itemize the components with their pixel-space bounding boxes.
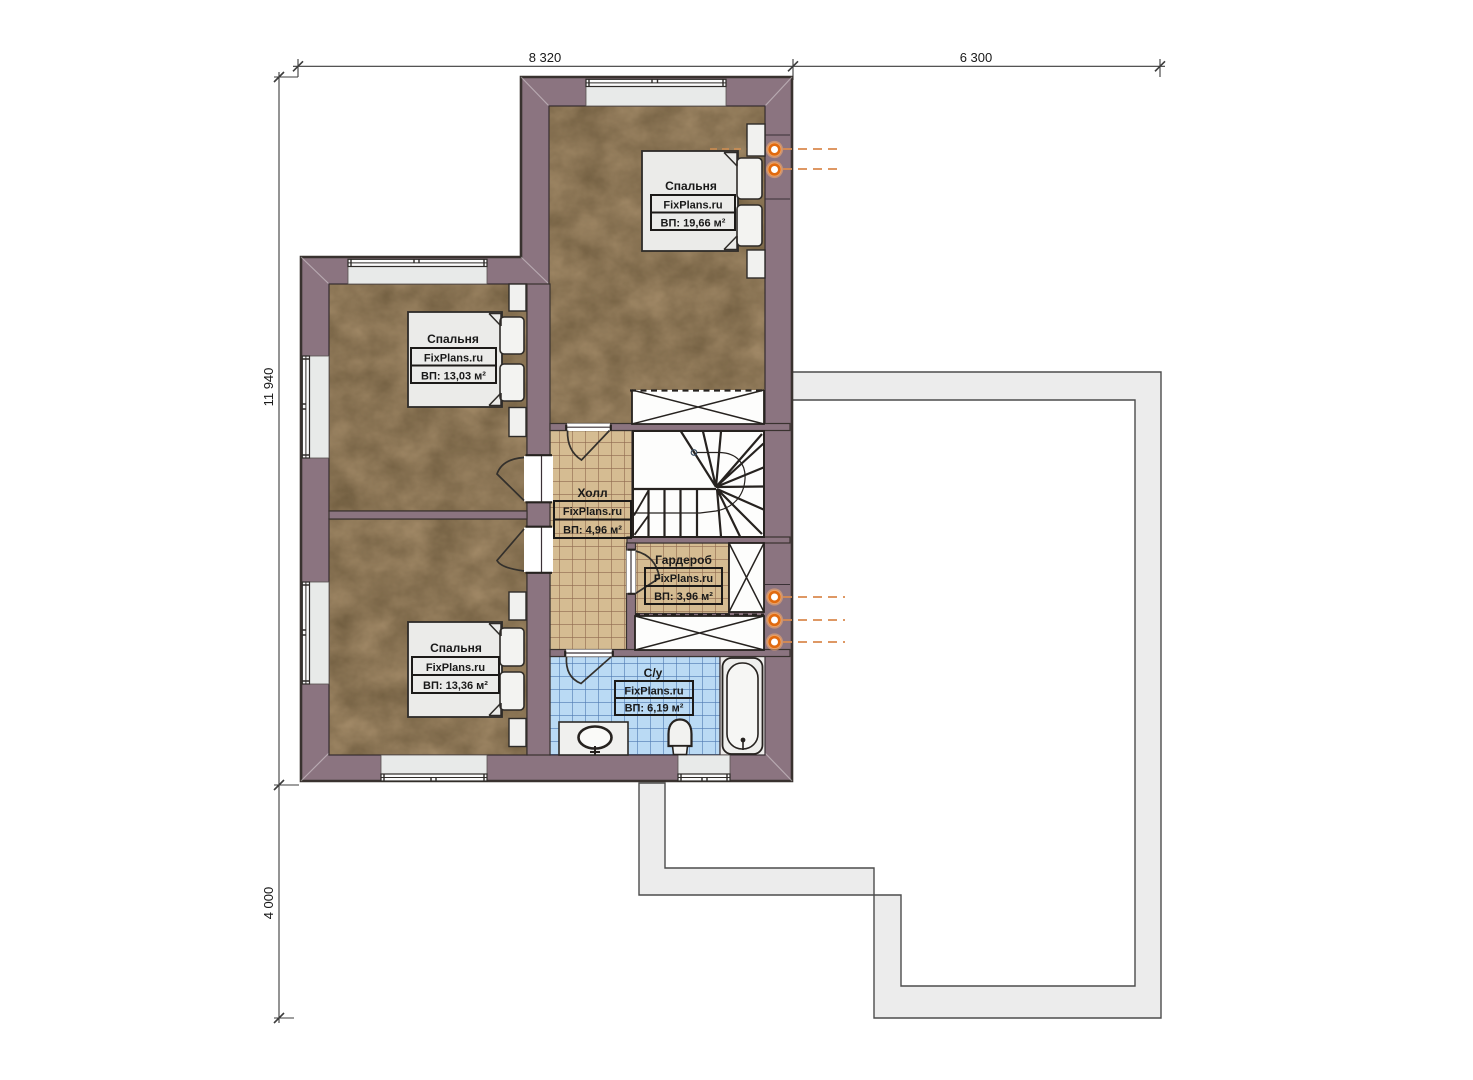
svg-text:Спальня: Спальня — [665, 179, 717, 193]
svg-text:С/у: С/у — [644, 666, 663, 680]
svg-text:Гардероб: Гардероб — [655, 553, 712, 567]
svg-text:FixPlans.ru: FixPlans.ru — [563, 506, 622, 518]
svg-text:FixPlans.ru: FixPlans.ru — [663, 200, 722, 212]
svg-text:6 300: 6 300 — [960, 50, 993, 65]
svg-text:Спальня: Спальня — [427, 332, 479, 346]
svg-text:Спальня: Спальня — [430, 641, 482, 655]
svg-text:FixPlans.ru: FixPlans.ru — [624, 686, 683, 698]
svg-text:11 940: 11 940 — [261, 368, 276, 407]
svg-text:FixPlans.ru: FixPlans.ru — [426, 662, 485, 674]
svg-text:ВП: 19,66 м²: ВП: 19,66 м² — [661, 218, 726, 230]
svg-text:4 000: 4 000 — [261, 887, 276, 920]
svg-text:ВП: 4,96 м²: ВП: 4,96 м² — [563, 525, 622, 537]
svg-text:Холл: Холл — [577, 486, 607, 500]
svg-text:FixPlans.ru: FixPlans.ru — [424, 353, 483, 365]
svg-text:ВП: 13,03 м²: ВП: 13,03 м² — [421, 371, 486, 383]
svg-text:ВП: 3,96 м²: ВП: 3,96 м² — [654, 591, 713, 603]
svg-text:FixPlans.ru: FixPlans.ru — [654, 573, 713, 585]
svg-text:ВП: 13,36 м²: ВП: 13,36 м² — [423, 680, 488, 692]
svg-text:ВП: 6,19 м²: ВП: 6,19 м² — [625, 703, 684, 715]
svg-text:8 320: 8 320 — [529, 50, 562, 65]
